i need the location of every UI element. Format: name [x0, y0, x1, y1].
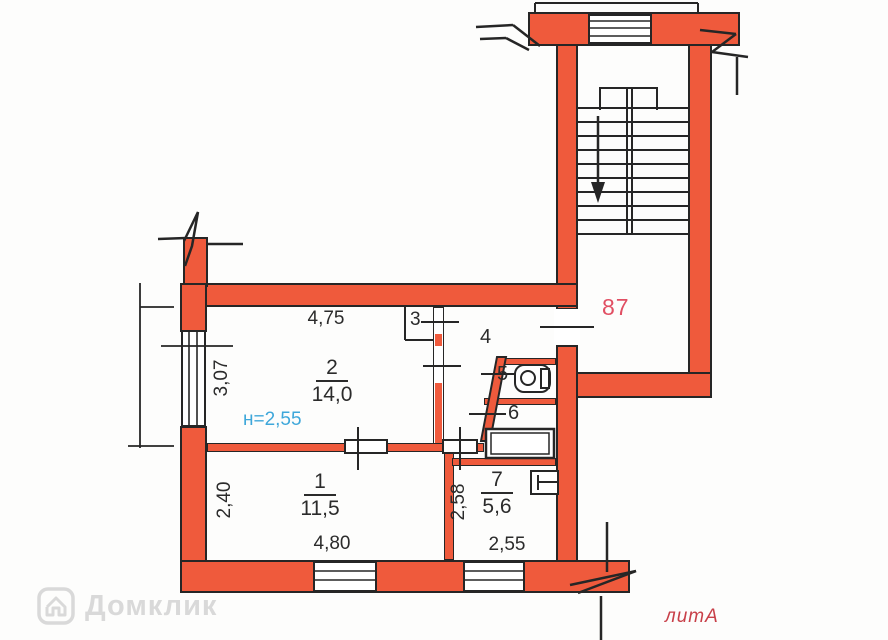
break-mark-bottom-right-icon — [570, 522, 636, 640]
room3-label: 3 — [410, 309, 421, 331]
ceiling-height-label: н=2,55 — [243, 409, 302, 431]
toilet-icon — [515, 365, 550, 392]
watermark-house-logo-icon — [36, 586, 76, 626]
break-mark-top-left-icon — [158, 212, 243, 266]
upper-floor-outline — [535, 3, 698, 14]
room5-label: 5 — [497, 363, 508, 386]
apartment-number-label: 87 — [602, 294, 630, 321]
room1-number: 1 — [304, 471, 336, 496]
dimension-room7-width: 2,55 — [479, 534, 535, 556]
room1-area: 11,5 — [300, 496, 339, 520]
room7-area: 5,6 — [482, 494, 511, 518]
room2-area: 14,0 — [312, 382, 353, 406]
room7-number: 7 — [481, 469, 513, 494]
stairs-icon — [578, 88, 688, 235]
watermark: Домклик — [36, 586, 217, 626]
room7-label: 7 5,6 — [472, 469, 522, 518]
dimension-room7-depth: 2,58 — [448, 472, 470, 532]
window-glazing-stair — [590, 21, 650, 36]
dimension-room2-width: 4,75 — [296, 308, 356, 330]
window-glazing-bottom — [315, 571, 523, 580]
floor-plan-canvas: 4,75 3,07 н=2,55 2 14,0 3 4 5 6 1 11,5 2… — [0, 0, 888, 640]
break-mark-stair-left-icon — [476, 25, 540, 50]
room2-label: 2 14,0 — [301, 357, 363, 406]
bathtub-icon — [486, 429, 554, 458]
watermark-text: Домклик — [85, 590, 217, 623]
sink-icon — [531, 471, 558, 494]
break-mark-stair-right-icon — [700, 30, 748, 95]
room4-label: 4 — [480, 326, 491, 349]
room1-label: 1 11,5 — [291, 471, 349, 520]
litera-label: литА — [665, 606, 719, 628]
dimension-room1-depth: 2,40 — [214, 470, 236, 530]
room2-number: 2 — [316, 357, 348, 382]
dimension-room2-depth: 3,07 — [211, 348, 233, 408]
dimension-room1-width: 4,80 — [303, 533, 361, 555]
stairs-down-arrow-icon — [591, 116, 605, 203]
door-tick-marks — [358, 322, 594, 470]
room6-label: 6 — [508, 402, 519, 425]
